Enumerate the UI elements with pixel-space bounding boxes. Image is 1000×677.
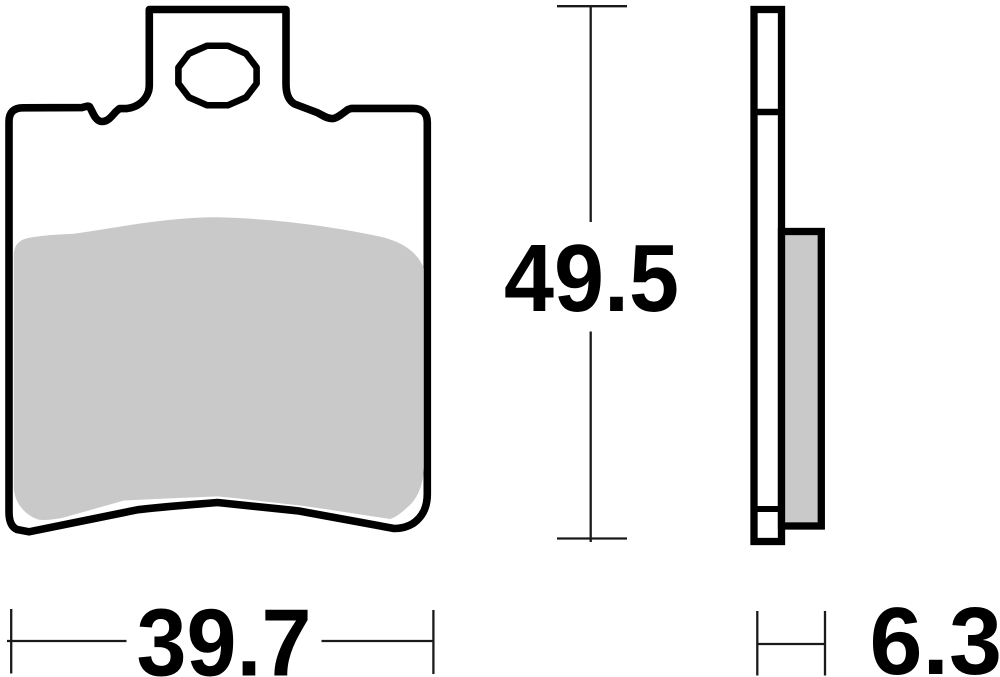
svg-text:49.5: 49.5 <box>504 225 679 332</box>
svg-text:39.7: 39.7 <box>137 590 312 677</box>
svg-text:6.3: 6.3 <box>870 588 1000 677</box>
